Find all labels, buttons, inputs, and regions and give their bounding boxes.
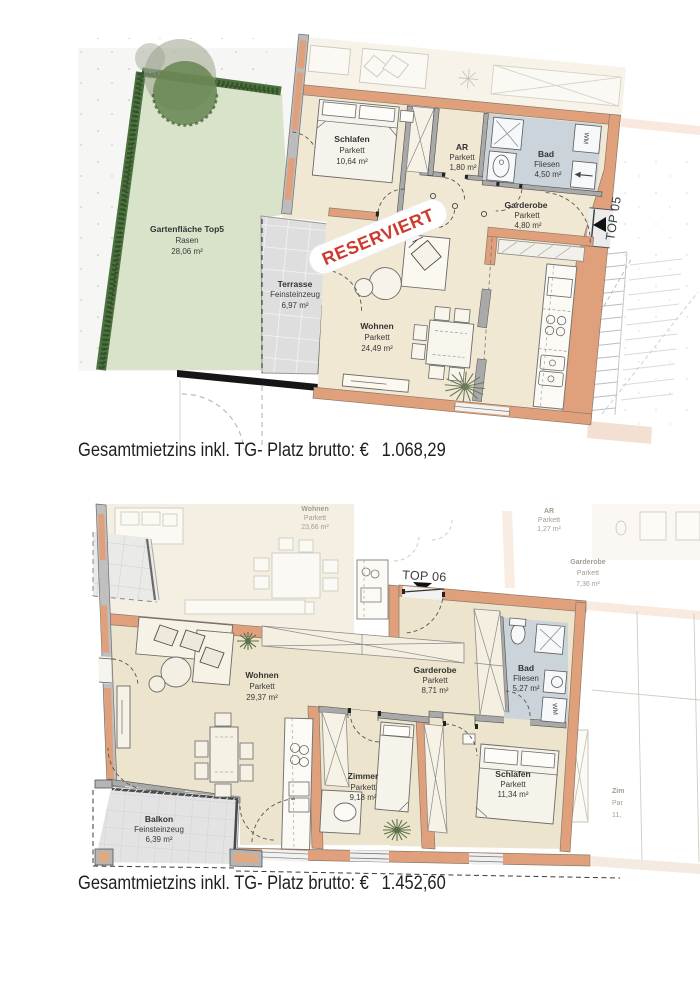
svg-text:Fliesen: Fliesen <box>534 160 560 169</box>
svg-text:23,66 m²: 23,66 m² <box>301 524 329 531</box>
svg-text:Zim: Zim <box>612 788 624 795</box>
svg-text:11,: 11, <box>612 812 621 819</box>
svg-text:1,27 m²: 1,27 m² <box>537 526 561 533</box>
svg-text:5,27 m²: 5,27 m² <box>512 684 539 693</box>
svg-text:Garderobe: Garderobe <box>414 665 457 675</box>
svg-text:10,64 m²: 10,64 m² <box>336 157 368 166</box>
svg-text:Garderobe: Garderobe <box>570 559 606 566</box>
svg-text:24,49 m²: 24,49 m² <box>361 344 393 353</box>
svg-text:Bad: Bad <box>538 149 554 159</box>
svg-text:Terrasse: Terrasse <box>278 279 313 289</box>
svg-text:4,80 m²: 4,80 m² <box>514 221 541 230</box>
svg-text:Wohnen: Wohnen <box>301 506 328 513</box>
svg-text:Wohnen: Wohnen <box>360 321 393 331</box>
svg-text:28,06 m²: 28,06 m² <box>171 247 203 256</box>
svg-text:Parkett: Parkett <box>514 211 540 220</box>
svg-text:9,18 m²: 9,18 m² <box>349 793 376 802</box>
svg-text:Fliesen: Fliesen <box>513 674 539 683</box>
svg-text:1,80 m²: 1,80 m² <box>449 163 476 172</box>
svg-text:Wohnen: Wohnen <box>245 670 278 680</box>
svg-text:11,34 m²: 11,34 m² <box>498 790 529 799</box>
svg-text:Zimmer: Zimmer <box>348 771 379 781</box>
svg-text:Bad: Bad <box>518 663 534 673</box>
svg-text:Parkett: Parkett <box>364 333 390 342</box>
svg-text:Parkett: Parkett <box>339 146 365 155</box>
svg-text:Parkett: Parkett <box>350 783 376 792</box>
svg-text:AR: AR <box>456 142 468 152</box>
svg-text:Feinsteinzeug: Feinsteinzeug <box>134 825 184 834</box>
svg-text:WM: WM <box>582 132 590 144</box>
svg-text:4,50 m²: 4,50 m² <box>534 170 561 179</box>
svg-text:Parkett: Parkett <box>249 682 275 691</box>
svg-text:Garderobe: Garderobe <box>505 200 548 210</box>
svg-text:6,97 m²: 6,97 m² <box>281 301 308 310</box>
svg-text:Parkett: Parkett <box>500 780 526 789</box>
svg-text:Parkett: Parkett <box>422 676 448 685</box>
svg-text:AR: AR <box>544 508 554 515</box>
svg-text:TOP 06: TOP 06 <box>402 568 447 584</box>
svg-text:Parkett: Parkett <box>577 570 599 577</box>
svg-text:7,36 m²: 7,36 m² <box>576 581 600 588</box>
svg-text:Schlafen: Schlafen <box>495 769 530 779</box>
svg-text:29,37 m²: 29,37 m² <box>246 693 278 702</box>
svg-text:8,71 m²: 8,71 m² <box>421 686 448 695</box>
svg-text:Parkett: Parkett <box>538 517 560 524</box>
svg-text:Schlafen: Schlafen <box>334 134 369 144</box>
svg-text:Parkett: Parkett <box>304 515 326 522</box>
svg-text:Feinsteinzeug: Feinsteinzeug <box>270 290 320 299</box>
svg-text:WM: WM <box>551 703 559 715</box>
svg-text:Par: Par <box>612 800 624 807</box>
svg-text:Balkon: Balkon <box>145 814 173 824</box>
svg-text:Gesamtmietzins inkl. TG- Platz: Gesamtmietzins inkl. TG- Platz brutto: €… <box>78 872 446 894</box>
svg-text:Gartenfläche Top5: Gartenfläche Top5 <box>150 224 224 234</box>
svg-text:Rasen: Rasen <box>175 236 198 245</box>
svg-text:Gesamtmietzins inkl. TG- Platz: Gesamtmietzins inkl. TG- Platz brutto: €… <box>78 439 446 461</box>
svg-text:6,39 m²: 6,39 m² <box>145 835 172 844</box>
svg-text:Parkett: Parkett <box>449 153 475 162</box>
